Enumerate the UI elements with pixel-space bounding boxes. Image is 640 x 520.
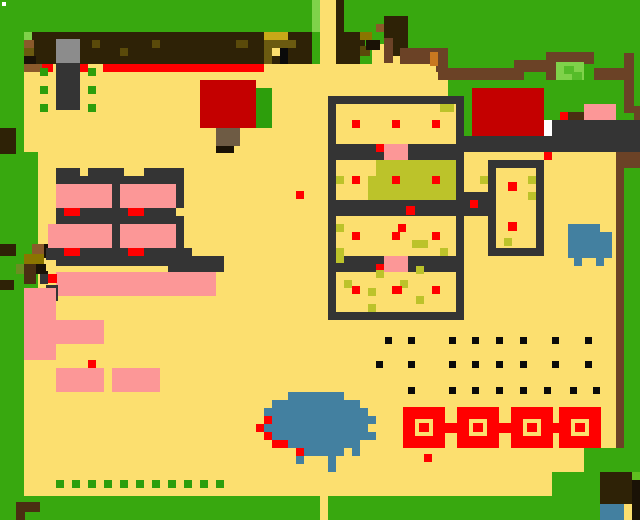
black-dot — [520, 361, 527, 368]
map-tile — [419, 423, 429, 432]
map-tile — [416, 266, 424, 274]
pond — [288, 392, 344, 400]
corner-structure — [600, 472, 632, 504]
map-tile — [16, 502, 40, 512]
map-tile — [128, 248, 144, 256]
map-tile — [272, 48, 280, 56]
fence — [524, 60, 546, 72]
black-dot — [520, 387, 527, 394]
map-tile — [336, 176, 344, 184]
black-dot — [376, 361, 383, 368]
map-tile — [24, 32, 32, 40]
map-tile — [508, 182, 517, 191]
map-tile — [416, 296, 424, 304]
blue-creature — [568, 232, 612, 258]
black-dot — [585, 361, 592, 368]
white-door — [544, 120, 552, 136]
map-tile — [124, 168, 144, 176]
pink-pad — [112, 368, 160, 392]
black-dot — [385, 337, 392, 344]
apron — [56, 272, 216, 296]
east-wall — [456, 136, 552, 152]
green-marker — [88, 104, 96, 112]
room-b — [120, 184, 176, 208]
doorway-2 — [384, 256, 408, 272]
black-dot — [496, 387, 503, 394]
map-tile — [280, 48, 288, 64]
map-tile — [336, 224, 344, 232]
map-tile — [272, 440, 288, 448]
map-tile — [624, 504, 632, 520]
black-dot — [408, 337, 415, 344]
map-tile — [24, 254, 44, 264]
map-tile — [46, 260, 56, 271]
map-tile — [584, 448, 640, 472]
black-dot — [585, 337, 592, 344]
map-tile — [544, 152, 552, 160]
map-tile — [64, 208, 80, 216]
black-dot — [520, 337, 527, 344]
pond — [272, 416, 376, 424]
black-dot — [552, 337, 559, 344]
map-tile — [24, 48, 34, 56]
map-tile — [0, 280, 14, 290]
pond — [288, 440, 360, 448]
black-dot — [496, 337, 503, 344]
green-marker — [88, 480, 96, 488]
green-marker — [88, 86, 96, 94]
map-tile — [336, 0, 344, 64]
map-tile — [392, 232, 400, 240]
map-tile — [432, 120, 440, 128]
pond — [304, 448, 344, 456]
pond — [264, 424, 368, 432]
map-tile — [384, 38, 393, 63]
green-marker — [120, 480, 128, 488]
map-tile — [596, 258, 604, 266]
tower-cap — [56, 39, 80, 63]
map-tile — [376, 270, 384, 278]
bottom-path-gap — [320, 496, 328, 520]
map-tile — [368, 160, 376, 176]
map-tile — [40, 274, 48, 284]
pond — [272, 400, 360, 408]
map-tile — [632, 472, 640, 480]
top-path — [320, 0, 336, 64]
map-tile — [473, 423, 483, 432]
map-tile — [264, 432, 272, 440]
orange-pixel — [430, 52, 438, 66]
room-a — [56, 184, 112, 208]
chimney — [216, 128, 240, 146]
map-tile — [80, 64, 88, 72]
map-tile — [328, 456, 336, 464]
map-tile — [572, 72, 582, 80]
map-tile — [392, 286, 402, 294]
pen-link — [499, 423, 511, 433]
west-barn — [200, 80, 256, 128]
map-tile — [432, 232, 440, 240]
map-tile — [24, 264, 36, 284]
map-tile — [528, 192, 536, 200]
east-border — [616, 152, 624, 448]
map-tile — [574, 258, 582, 266]
green-marker — [168, 480, 176, 488]
map-tile — [236, 40, 248, 48]
map-tile — [440, 248, 448, 256]
fence — [634, 106, 640, 120]
map-tile — [352, 232, 360, 240]
map-tile — [527, 423, 537, 432]
pink-pad — [56, 320, 104, 344]
green-marker — [88, 68, 96, 76]
map-tile — [80, 168, 88, 176]
map-tile — [152, 40, 160, 48]
black-dot — [552, 361, 559, 368]
black-dot — [408, 387, 415, 394]
green-marker — [184, 480, 192, 488]
map-tile — [392, 176, 400, 184]
map-tile — [368, 304, 376, 312]
map-tile — [352, 448, 360, 456]
east-barn — [472, 88, 544, 136]
map-tile — [336, 255, 344, 263]
map-tile — [424, 454, 432, 462]
map-tile — [368, 432, 376, 440]
map-tile — [24, 56, 36, 64]
map-tile — [216, 146, 234, 153]
west-barn-door — [256, 88, 272, 128]
map-tile — [296, 448, 304, 456]
map-tile — [368, 288, 376, 296]
green-marker — [40, 86, 48, 94]
map-tile — [256, 424, 264, 432]
map-tile — [128, 208, 144, 216]
map-tile — [264, 416, 272, 424]
map-tile — [376, 24, 384, 32]
red-strip — [103, 64, 264, 72]
map-tile — [64, 248, 80, 256]
pen-link — [445, 423, 457, 433]
map-tile — [120, 48, 128, 56]
tower — [56, 63, 80, 110]
map-tile — [176, 208, 184, 216]
black-dot — [570, 387, 577, 394]
map-tile — [600, 504, 624, 520]
map-tile — [432, 176, 440, 184]
map-tile — [352, 176, 360, 184]
map-tile — [264, 40, 296, 48]
map-tile — [504, 238, 512, 246]
crop-patch — [368, 160, 456, 200]
map-tile — [440, 104, 454, 112]
map-tile — [376, 144, 384, 152]
green-marker — [104, 480, 112, 488]
map-tile — [568, 112, 584, 120]
black-dot — [472, 337, 479, 344]
green-marker — [152, 480, 160, 488]
map-tile — [48, 274, 57, 283]
map-tile — [92, 40, 100, 48]
map-tile — [360, 32, 372, 40]
map-tile — [528, 176, 536, 184]
fence — [514, 60, 524, 80]
fence — [438, 68, 514, 80]
map-tile — [632, 480, 640, 520]
light-green-stripe — [312, 0, 320, 32]
house-frame — [168, 256, 224, 272]
map-tile — [560, 112, 568, 120]
pond — [272, 432, 368, 440]
map-tile — [392, 120, 400, 128]
map-tile — [352, 286, 360, 294]
map-tile — [508, 222, 517, 231]
map-tile — [366, 40, 380, 50]
green-marker — [136, 480, 144, 488]
fence — [594, 68, 624, 80]
pink-pad — [56, 368, 104, 392]
map-tile — [24, 40, 34, 48]
fence — [400, 48, 448, 64]
game-map-screen — [0, 0, 640, 520]
black-dot — [496, 361, 503, 368]
map-tile — [412, 240, 428, 248]
black-dot — [593, 387, 600, 394]
black-dot — [472, 361, 479, 368]
map-tile — [575, 423, 585, 432]
map-tile — [328, 464, 336, 472]
pond — [264, 408, 368, 416]
map-tile — [352, 120, 360, 128]
map-tile — [432, 286, 440, 294]
map-tile — [398, 224, 406, 232]
green-marker — [56, 480, 64, 488]
green-marker — [200, 480, 208, 488]
pen-link — [553, 423, 559, 433]
room-d — [120, 224, 176, 248]
black-dot — [408, 361, 415, 368]
map-tile — [296, 191, 304, 199]
east-wall — [552, 120, 640, 152]
green-marker — [216, 480, 224, 488]
map-tile — [344, 280, 352, 288]
map-tile — [264, 48, 272, 64]
map-tile — [296, 456, 304, 464]
green-marker — [72, 480, 80, 488]
cursor-dot — [2, 2, 6, 6]
map-tile — [0, 128, 16, 154]
map-tile — [88, 360, 96, 368]
green-marker — [40, 104, 48, 112]
black-dot — [449, 387, 456, 394]
black-dot — [449, 361, 456, 368]
map-tile — [480, 176, 488, 184]
fence — [624, 53, 634, 113]
black-dot — [449, 337, 456, 344]
pink-box — [584, 104, 616, 120]
map-tile — [406, 206, 415, 215]
east-border — [624, 152, 640, 168]
room-c — [48, 224, 112, 248]
map-tile — [0, 244, 16, 256]
bush-frame — [546, 64, 556, 80]
map-tile — [470, 200, 478, 208]
black-dot — [472, 387, 479, 394]
map-tile — [264, 32, 288, 40]
pink-strip — [24, 288, 56, 360]
black-dot — [544, 387, 551, 394]
map-tile — [16, 512, 25, 520]
green-marker — [40, 68, 48, 76]
doorway-1 — [384, 144, 408, 160]
